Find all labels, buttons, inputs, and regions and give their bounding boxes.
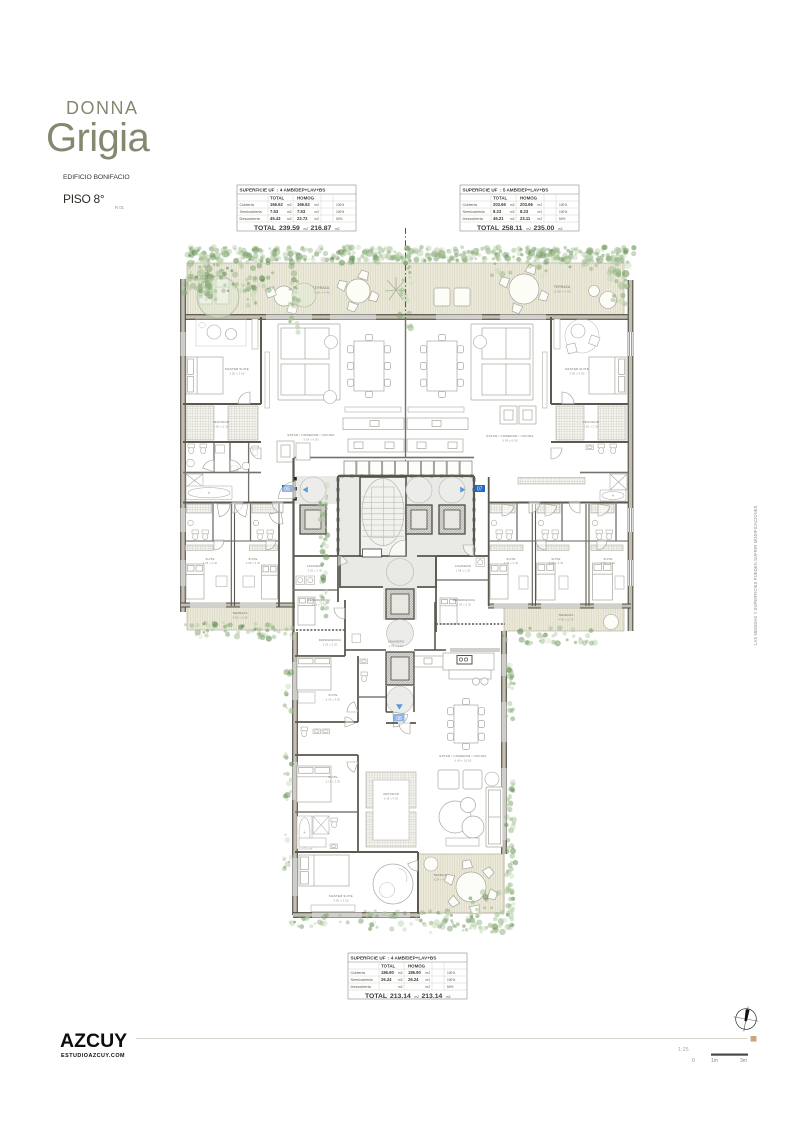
svg-text:m2: m2 (446, 995, 451, 999)
svg-text:TOTAL: TOTAL (381, 964, 396, 969)
svg-text:0: 0 (692, 1058, 695, 1064)
svg-text:m2: m2 (538, 210, 543, 214)
svg-text:DONNA: DONNA (66, 98, 139, 118)
svg-text:m2: m2 (426, 985, 431, 989)
svg-text:166.62: 166.62 (297, 202, 310, 207)
svg-text:TOTAL: TOTAL (477, 225, 499, 232)
svg-text:EDIFICIO BONIFACIO: EDIFICIO BONIFACIO (63, 174, 130, 181)
svg-text:ESTAR / COMEDOR / COCINA: ESTAR / COMEDOR / COCINA (288, 433, 335, 437)
svg-text:2.50 x 2.30: 2.50 x 2.30 (213, 425, 228, 429)
svg-text:45.43: 45.43 (270, 216, 281, 221)
svg-text:3.16 x 4.50: 3.16 x 4.50 (326, 699, 341, 702)
svg-text:ESTUDIOAZCUY.COM: ESTUDIOAZCUY.COM (61, 1053, 125, 1059)
svg-text:LAVADERO: LAVADERO (388, 640, 405, 644)
svg-text:100%: 100% (559, 210, 567, 214)
svg-text:4.90 x 1.60: 4.90 x 1.60 (232, 616, 247, 620)
svg-text:186.90: 186.90 (408, 970, 421, 975)
svg-text:100%: 100% (336, 210, 344, 214)
svg-text:22.72: 22.72 (297, 216, 308, 221)
svg-text:7.53: 7.53 (270, 209, 279, 214)
svg-text:m2: m2 (287, 203, 292, 207)
svg-text:3.05 x 3.40: 3.05 x 3.40 (203, 562, 218, 565)
svg-text:VESTIDOR: VESTIDOR (383, 792, 399, 796)
svg-text:m2: m2 (315, 217, 320, 221)
svg-text:Descubierta: Descubierta (240, 217, 261, 221)
svg-text:Cubierta: Cubierta (240, 203, 255, 207)
svg-text:MASTER SUITE: MASTER SUITE (225, 367, 249, 371)
svg-text:VESTIDOR: VESTIDOR (583, 420, 599, 424)
svg-text:100%: 100% (336, 203, 344, 207)
svg-text:46.21: 46.21 (493, 216, 504, 221)
svg-text:7.53: 7.53 (297, 209, 306, 214)
svg-text:3.05 x 3.40: 3.05 x 3.40 (246, 562, 261, 565)
svg-text:m2: m2 (415, 995, 420, 999)
svg-text:2.00 x 1.40: 2.00 x 1.40 (308, 570, 323, 573)
svg-text:LAVADERO: LAVADERO (455, 564, 472, 568)
svg-text:2.96 x 3.40: 2.96 x 3.40 (601, 562, 616, 565)
svg-text:SUPERFICIE UF : 4 AMB/DEP+LAV: SUPERFICIE UF : 4 AMB/DEP+LAV+BS (351, 956, 437, 961)
svg-text:m2: m2 (538, 217, 543, 221)
svg-text:m2: m2 (398, 971, 403, 975)
svg-text:3.14 x 3.20: 3.14 x 3.20 (326, 781, 341, 784)
svg-text:TOTAL: TOTAL (270, 196, 285, 201)
svg-text:HOMOG: HOMOG (297, 196, 315, 201)
svg-text:DEPENDENCIA: DEPENDENCIA (319, 638, 341, 642)
svg-text:50%: 50% (336, 217, 343, 221)
svg-text:50%: 50% (559, 217, 566, 221)
svg-text:166.62: 166.62 (270, 202, 283, 207)
svg-text:LAS MEDIDAS Y SUPERFICIES PUED: LAS MEDIDAS Y SUPERFICIES PUEDEN SUFRIR … (753, 505, 758, 645)
svg-text:235.00: 235.00 (534, 225, 555, 232)
svg-text:SUITE: SUITE (551, 557, 560, 561)
svg-text:100%: 100% (447, 978, 455, 982)
svg-text:m2: m2 (304, 227, 309, 231)
svg-text:07: 07 (477, 487, 483, 493)
svg-text:50%: 50% (447, 985, 454, 989)
svg-text:12.60 x 4.40: 12.60 x 4.40 (553, 290, 570, 294)
svg-text:MASTER SUITE: MASTER SUITE (565, 367, 589, 371)
svg-text:2.96 x 3.40: 2.96 x 3.40 (504, 562, 519, 565)
svg-text:TERRAZA: TERRAZA (558, 613, 573, 617)
svg-text:TOTAL: TOTAL (493, 196, 508, 201)
svg-text:186.90: 186.90 (381, 970, 394, 975)
svg-text:Descubierta: Descubierta (351, 985, 372, 989)
svg-text:4.60 x 3.50: 4.60 x 3.50 (333, 899, 348, 903)
svg-text:AZCUY: AZCUY (60, 1030, 127, 1052)
svg-text:ESTAR / COMEDOR / COCINA: ESTAR / COMEDOR / COCINA (487, 434, 534, 438)
svg-text:m2: m2 (558, 227, 563, 231)
svg-text:R 01: R 01 (115, 205, 125, 210)
svg-text:8.23: 8.23 (520, 209, 529, 214)
svg-text:9.59 x 6.00: 9.59 x 6.00 (502, 439, 517, 443)
svg-text:Grigia: Grigia (46, 116, 150, 160)
svg-text:m2: m2 (315, 210, 320, 214)
svg-text:ESTAR / COMEDOR / COCINA: ESTAR / COMEDOR / COCINA (440, 754, 487, 758)
svg-text:VESTIDOR: VESTIDOR (213, 420, 229, 424)
svg-text:Descubierta: Descubierta (463, 217, 484, 221)
svg-text:m2: m2 (287, 217, 292, 221)
svg-text:SUITE: SUITE (603, 557, 612, 561)
svg-text:216.87: 216.87 (311, 225, 332, 232)
svg-text:m2: m2 (510, 203, 515, 207)
svg-text:9.59 x 6.00: 9.59 x 6.00 (303, 438, 318, 442)
svg-text:2.65 x 2.30: 2.65 x 2.30 (312, 604, 327, 607)
svg-text:TOTAL: TOTAL (254, 225, 276, 232)
svg-text:258.11: 258.11 (502, 225, 523, 232)
svg-text:3.90 x 3.80: 3.90 x 3.80 (569, 372, 584, 376)
svg-text:m2: m2 (538, 203, 543, 207)
svg-text:HOMOG: HOMOG (520, 196, 538, 201)
svg-text:213.14: 213.14 (422, 993, 443, 1000)
svg-text:100%: 100% (447, 971, 455, 975)
svg-text:2.50 x 2.30: 2.50 x 2.30 (583, 425, 598, 429)
svg-text:Semicubierta: Semicubierta (463, 210, 486, 214)
svg-text:203.66: 203.66 (520, 202, 533, 207)
svg-text:2.46 x 4.50: 2.46 x 4.50 (384, 798, 399, 801)
svg-text:Cubierta: Cubierta (463, 203, 478, 207)
svg-text:m2: m2 (398, 978, 403, 982)
svg-text:Cubierta: Cubierta (351, 971, 366, 975)
svg-text:SUITE: SUITE (506, 557, 515, 561)
svg-text:TERRAZA: TERRAZA (554, 285, 571, 289)
svg-text:1m: 1m (711, 1058, 718, 1064)
svg-text:23.11: 23.11 (520, 216, 531, 221)
svg-text:HOMOG: HOMOG (408, 964, 426, 969)
svg-text:Semicubierta: Semicubierta (240, 210, 263, 214)
svg-text:Semicubierta: Semicubierta (351, 978, 374, 982)
svg-text:203.66: 203.66 (493, 202, 506, 207)
svg-text:2.50 x 2.30: 2.50 x 2.30 (323, 644, 338, 647)
svg-text:2.96 x 3.40: 2.96 x 3.40 (549, 562, 564, 565)
svg-text:SUITE: SUITE (205, 557, 214, 561)
svg-text:m2: m2 (426, 978, 431, 982)
svg-text:26.24: 26.24 (381, 977, 392, 982)
svg-text:213.14: 213.14 (390, 993, 411, 1000)
svg-text:3m: 3m (740, 1058, 747, 1064)
svg-text:1.90 x 2.10: 1.90 x 2.10 (389, 645, 404, 648)
svg-text:TERRAZA: TERRAZA (313, 286, 330, 290)
svg-text:SUPERFICIE UF : 5 AMB/DEP+LAV: SUPERFICIE UF : 5 AMB/DEP+LAV+BS (463, 188, 549, 193)
svg-text:m2: m2 (426, 971, 431, 975)
svg-text:TOTAL: TOTAL (365, 993, 387, 1000)
svg-text:239.59: 239.59 (279, 225, 300, 232)
svg-text:m2: m2 (398, 985, 403, 989)
svg-text:1:25: 1:25 (678, 1047, 689, 1053)
svg-text:4.90 x 1.50: 4.90 x 1.50 (558, 618, 573, 622)
svg-text:1.98 x 1.35: 1.98 x 1.35 (456, 570, 471, 573)
svg-text:8.23: 8.23 (493, 209, 502, 214)
svg-text:MASTER SUITE: MASTER SUITE (329, 894, 353, 898)
svg-text:6.40 x 10.50: 6.40 x 10.50 (455, 759, 472, 763)
svg-text:DEPENDENCIA: DEPENDENCIA (453, 598, 475, 602)
svg-text:SUITE: SUITE (248, 557, 257, 561)
svg-text:26.24: 26.24 (408, 977, 419, 982)
svg-text:m2: m2 (527, 227, 532, 231)
svg-text:m2: m2 (315, 203, 320, 207)
svg-text:100%: 100% (559, 203, 567, 207)
svg-text:PISO 8°: PISO 8° (63, 192, 105, 206)
svg-text:m2: m2 (510, 217, 515, 221)
svg-text:m2: m2 (510, 210, 515, 214)
svg-text:m2: m2 (287, 210, 292, 214)
svg-text:SUPERFICIE UF : 4 AMB/DEP+LAV: SUPERFICIE UF : 4 AMB/DEP+LAV+BS (240, 188, 326, 193)
svg-text:SUITE: SUITE (328, 775, 337, 779)
svg-text:m2: m2 (335, 227, 340, 231)
svg-text:SUITE: SUITE (328, 693, 337, 697)
svg-text:3.90 x 3.80: 3.90 x 3.80 (229, 372, 244, 376)
svg-text:2.50 x 2.30: 2.50 x 2.30 (457, 604, 472, 607)
svg-text:TERRAZA: TERRAZA (232, 611, 247, 615)
